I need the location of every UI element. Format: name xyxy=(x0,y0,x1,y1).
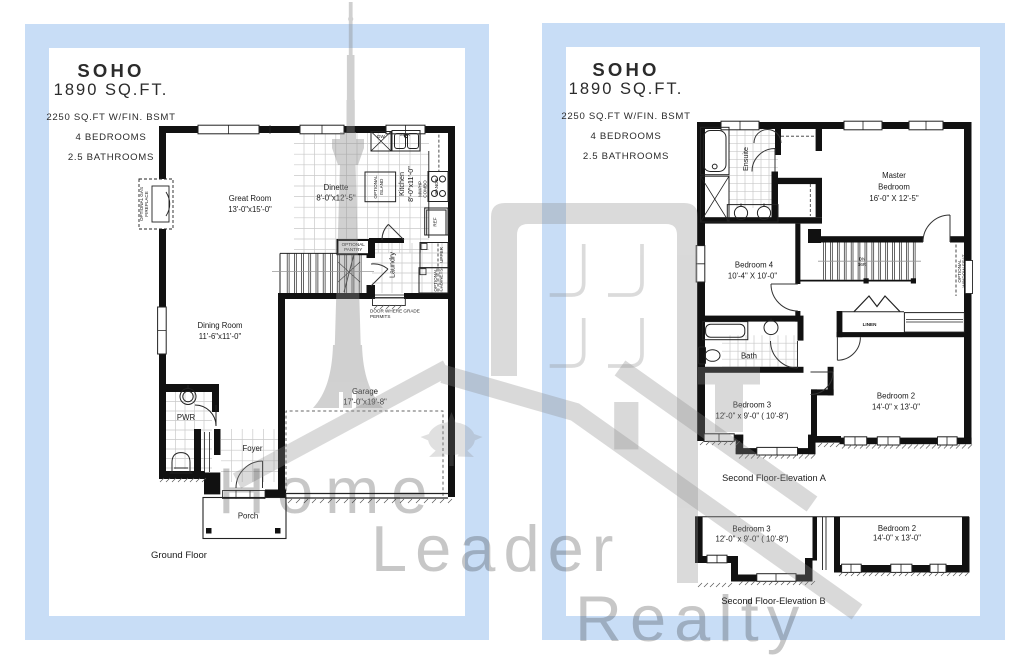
svg-text:14'-0" x 13'-0": 14'-0" x 13'-0" xyxy=(872,403,920,412)
svg-text:RANGE: RANGE xyxy=(434,178,439,194)
svg-text:Bath: Bath xyxy=(741,352,757,361)
svg-text:UPPER: UPPER xyxy=(439,246,444,263)
svg-text:DW: DW xyxy=(377,134,385,139)
svg-text:Great Room: Great Room xyxy=(229,194,271,203)
svg-text:DN: DN xyxy=(859,257,866,262)
svg-text:ISLAND: ISLAND xyxy=(379,178,384,195)
svg-text:Foyer: Foyer xyxy=(243,444,263,453)
svg-text:SOHO: SOHO xyxy=(592,59,659,80)
svg-text:16R: 16R xyxy=(858,262,867,267)
svg-text:WINDOW SEAT: WINDOW SEAT xyxy=(961,254,966,287)
svg-text:Bedroom 4: Bedroom 4 xyxy=(735,261,774,270)
svg-text:2250 SQ.FT W/FIN. BSMT: 2250 SQ.FT W/FIN. BSMT xyxy=(561,111,690,122)
svg-text:LINEN: LINEN xyxy=(863,322,877,327)
svg-text:10'-4" X 10'-0": 10'-4" X 10'-0" xyxy=(728,272,777,281)
svg-text:REF: REF xyxy=(433,217,438,226)
svg-text:Bedroom 2: Bedroom 2 xyxy=(878,524,916,533)
svg-text:1890 SQ.FT.: 1890 SQ.FT. xyxy=(569,80,684,98)
svg-text:Ground Floor: Ground Floor xyxy=(151,550,207,561)
svg-text:Leader: Leader xyxy=(371,512,621,585)
svg-text:COMBO: COMBO xyxy=(423,180,428,198)
svg-text:4 BEDROOMS: 4 BEDROOMS xyxy=(76,132,147,143)
svg-text:PERMITS: PERMITS xyxy=(370,314,390,319)
svg-text:1890 SQ.FT.: 1890 SQ.FT. xyxy=(54,81,169,99)
svg-text:2.5 BATHROOMS: 2.5 BATHROOMS xyxy=(68,152,154,163)
svg-text:4 BEDROOMS: 4 BEDROOMS xyxy=(591,131,662,142)
svg-text:Dining Room: Dining Room xyxy=(197,321,242,330)
svg-text:13'-0"x15'-0": 13'-0"x15'-0" xyxy=(228,205,272,214)
svg-text:14'-0" x 13'-0": 14'-0" x 13'-0" xyxy=(873,534,921,543)
svg-text:8'-0"x11'-0": 8'-0"x11'-0" xyxy=(406,166,415,202)
svg-text:FIREPLACE: FIREPLACE xyxy=(144,191,149,217)
svg-text:DOOR WHERE GRADE: DOOR WHERE GRADE xyxy=(370,309,420,314)
svg-text:Laundry: Laundry xyxy=(388,252,397,278)
svg-text:SINK: SINK xyxy=(400,132,412,137)
svg-text:Ensuite: Ensuite xyxy=(741,147,750,171)
svg-text:PWR: PWR xyxy=(177,413,196,422)
svg-text:SOHO: SOHO xyxy=(77,60,144,81)
svg-text:11'-6"x11'-0": 11'-6"x11'-0" xyxy=(199,332,242,341)
svg-text:Realty: Realty xyxy=(575,582,807,655)
svg-text:Master: Master xyxy=(882,171,906,180)
svg-text:OPTIONAL: OPTIONAL xyxy=(373,175,378,199)
svg-text:CABINETS: CABINETS xyxy=(439,269,444,292)
svg-text:Bedroom: Bedroom xyxy=(878,183,910,192)
svg-text:Kitchen: Kitchen xyxy=(397,172,406,196)
svg-text:2.5 BATHROOMS: 2.5 BATHROOMS xyxy=(583,151,669,162)
svg-text:Bedroom 2: Bedroom 2 xyxy=(877,392,915,401)
svg-text:OPTIONAL: OPTIONAL xyxy=(433,268,438,292)
svg-text:16'-0" X 12'-5": 16'-0" X 12'-5" xyxy=(869,194,918,203)
svg-text:2250 SQ.FT W/FIN. BSMT: 2250 SQ.FT W/FIN. BSMT xyxy=(46,112,175,123)
